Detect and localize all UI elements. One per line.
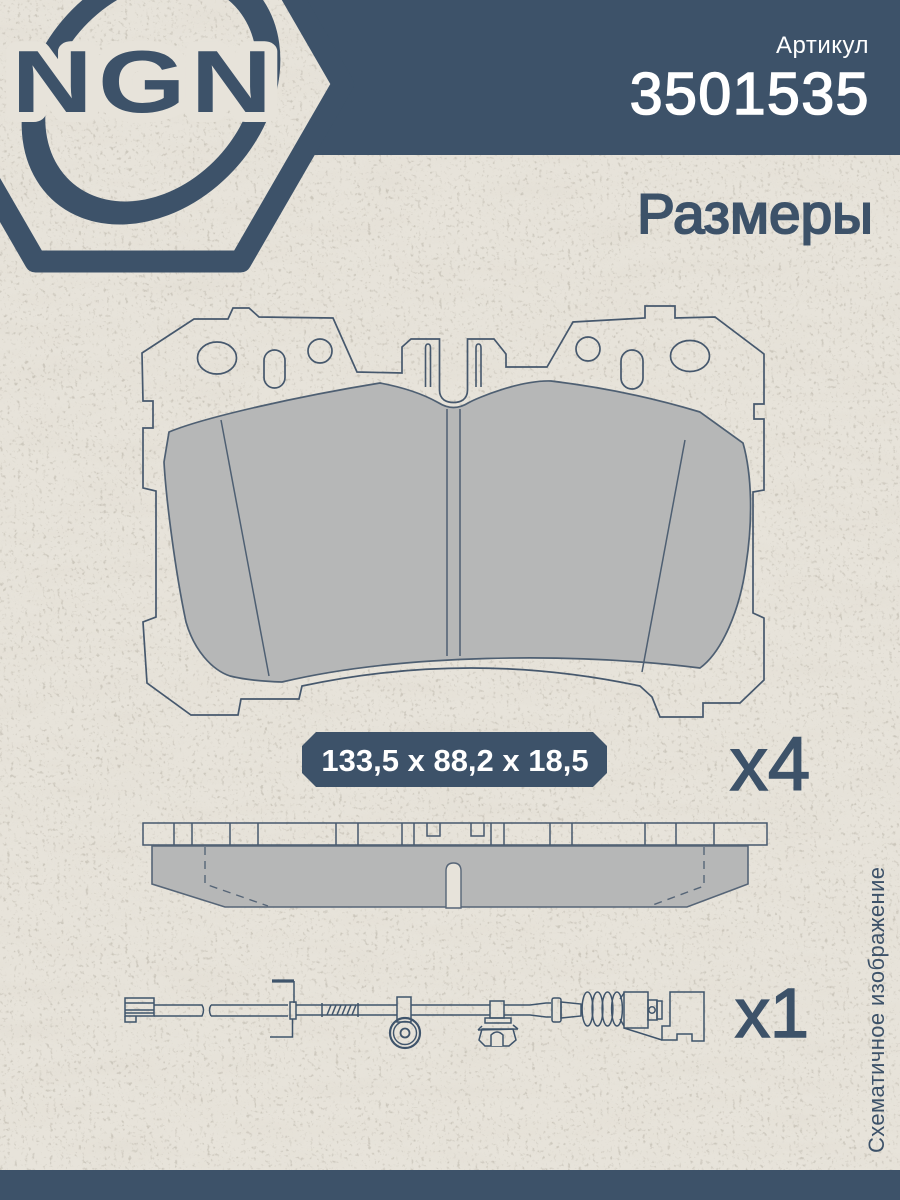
svg-text:133,5 x 88,2 x 18,5: 133,5 x 88,2 x 18,5 (321, 743, 588, 778)
svg-text:NGN: NGN (12, 34, 278, 132)
svg-text:3501535: 3501535 (630, 61, 870, 127)
svg-text:x4: x4 (730, 722, 810, 807)
svg-text:Артикул: Артикул (776, 32, 869, 59)
svg-text:x1: x1 (735, 974, 809, 1052)
svg-text:Схематичное изображение: Схематичное изображение (864, 867, 889, 1153)
svg-text:Размеры: Размеры (637, 182, 873, 245)
